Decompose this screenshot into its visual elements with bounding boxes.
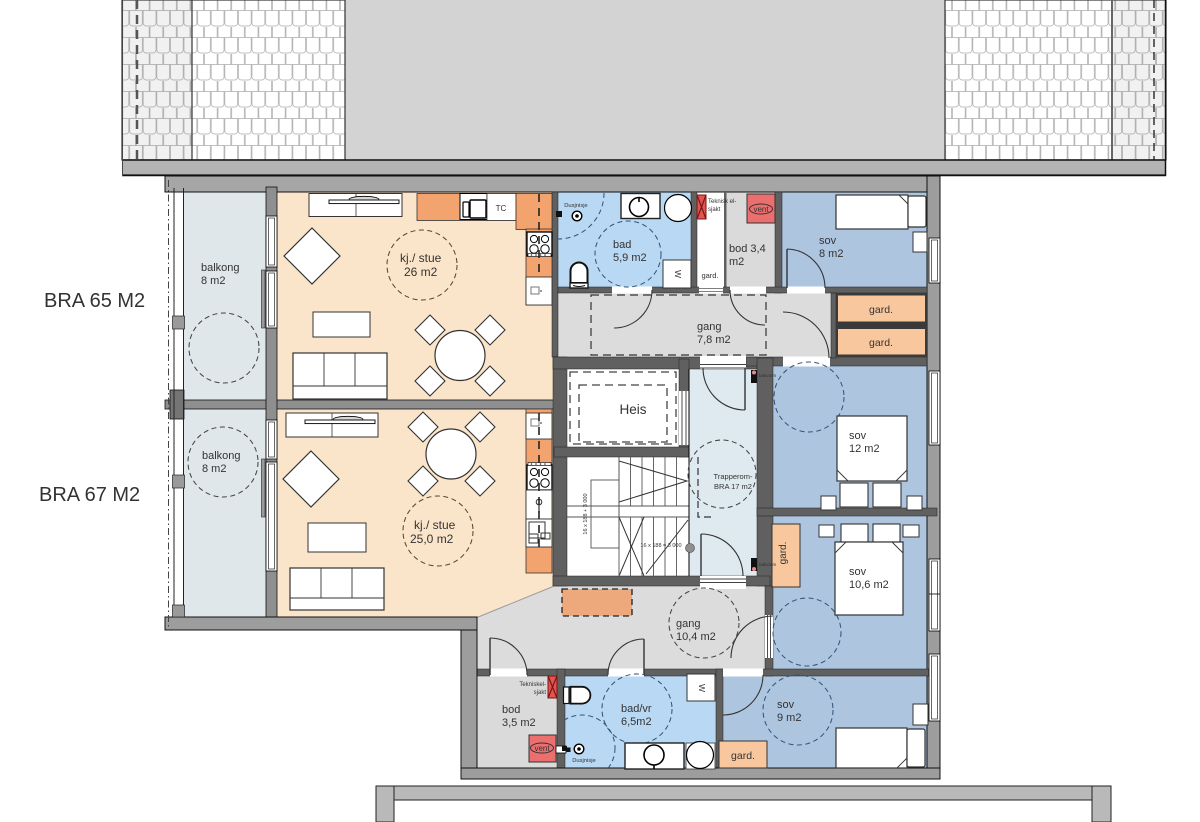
svg-text:bad: bad (613, 239, 631, 251)
svg-text:BRA 65 M2: BRA 65 M2 (44, 290, 145, 312)
svg-text:12 m2: 12 m2 (849, 443, 880, 455)
svg-text:16 x 188 + 3 000: 16 x 188 + 3 000 (583, 493, 589, 534)
svg-text:sjakt: sjakt (534, 690, 547, 696)
svg-text:gard.: gard. (869, 304, 893, 316)
svg-text:Dusjnisje: Dusjnisje (572, 758, 596, 764)
svg-text:kj./ stue: kj./ stue (400, 251, 442, 265)
svg-text:W: W (697, 684, 707, 692)
svg-text:balkong: balkong (202, 450, 241, 462)
svg-text:vent: vent (753, 205, 769, 214)
svg-text:10,4 m2: 10,4 m2 (676, 631, 716, 643)
svg-text:5,9 m2: 5,9 m2 (613, 252, 647, 264)
svg-text:Heis: Heis (619, 402, 646, 417)
svg-text:bakvarm: bakvarm (759, 562, 777, 567)
svg-text:TC: TC (496, 204, 507, 213)
svg-text:W: W (673, 270, 683, 278)
svg-text:bod 3,4: bod 3,4 (729, 243, 766, 255)
svg-text:8 m2: 8 m2 (201, 275, 225, 287)
svg-text:sov: sov (849, 430, 867, 442)
svg-text:sov: sov (849, 566, 867, 578)
svg-text:BRA 17 m2: BRA 17 m2 (714, 482, 752, 491)
svg-text:sov: sov (819, 235, 837, 247)
svg-text:gang: gang (676, 618, 700, 630)
svg-text:bakvarm: bakvarm (759, 373, 777, 378)
svg-text:25,0 m2: 25,0 m2 (410, 532, 454, 546)
svg-text:Tekniskel-: Tekniskel- (519, 682, 546, 688)
svg-text:7,8 m2: 7,8 m2 (697, 334, 731, 346)
svg-text:Teknisk el-: Teknisk el- (708, 199, 736, 205)
svg-text:gard.: gard. (778, 542, 789, 565)
svg-text:6,5m2: 6,5m2 (621, 716, 652, 728)
svg-text:gard.: gard. (869, 337, 893, 349)
svg-text:m2: m2 (729, 256, 744, 268)
svg-text:gang: gang (697, 321, 721, 333)
svg-text:Trapperom-: Trapperom- (714, 472, 753, 481)
svg-text:8 m2: 8 m2 (202, 463, 226, 475)
svg-text:9 m2: 9 m2 (777, 712, 801, 724)
svg-text:balkong: balkong (201, 262, 240, 274)
svg-text:kj./ stue: kj./ stue (414, 518, 456, 532)
svg-text:sov: sov (777, 699, 795, 711)
svg-text:bad/vr: bad/vr (621, 703, 652, 715)
svg-text:3,5 m2: 3,5 m2 (502, 717, 536, 729)
svg-text:8 m2: 8 m2 (819, 248, 843, 260)
svg-text:10,6 m2: 10,6 m2 (849, 579, 889, 591)
svg-text:16 x 188 = 3 000: 16 x 188 = 3 000 (640, 543, 681, 549)
svg-text:bod: bod (502, 704, 520, 716)
svg-text:sjakt: sjakt (708, 207, 721, 213)
svg-text:BRA 67 M2: BRA 67 M2 (39, 484, 140, 506)
svg-text:26 m2: 26 m2 (404, 265, 438, 279)
svg-text:gard.: gard. (731, 750, 755, 762)
svg-text:gard.: gard. (701, 271, 718, 280)
svg-text:vent: vent (534, 744, 550, 753)
svg-text:Dusjnisje: Dusjnisje (564, 203, 588, 209)
